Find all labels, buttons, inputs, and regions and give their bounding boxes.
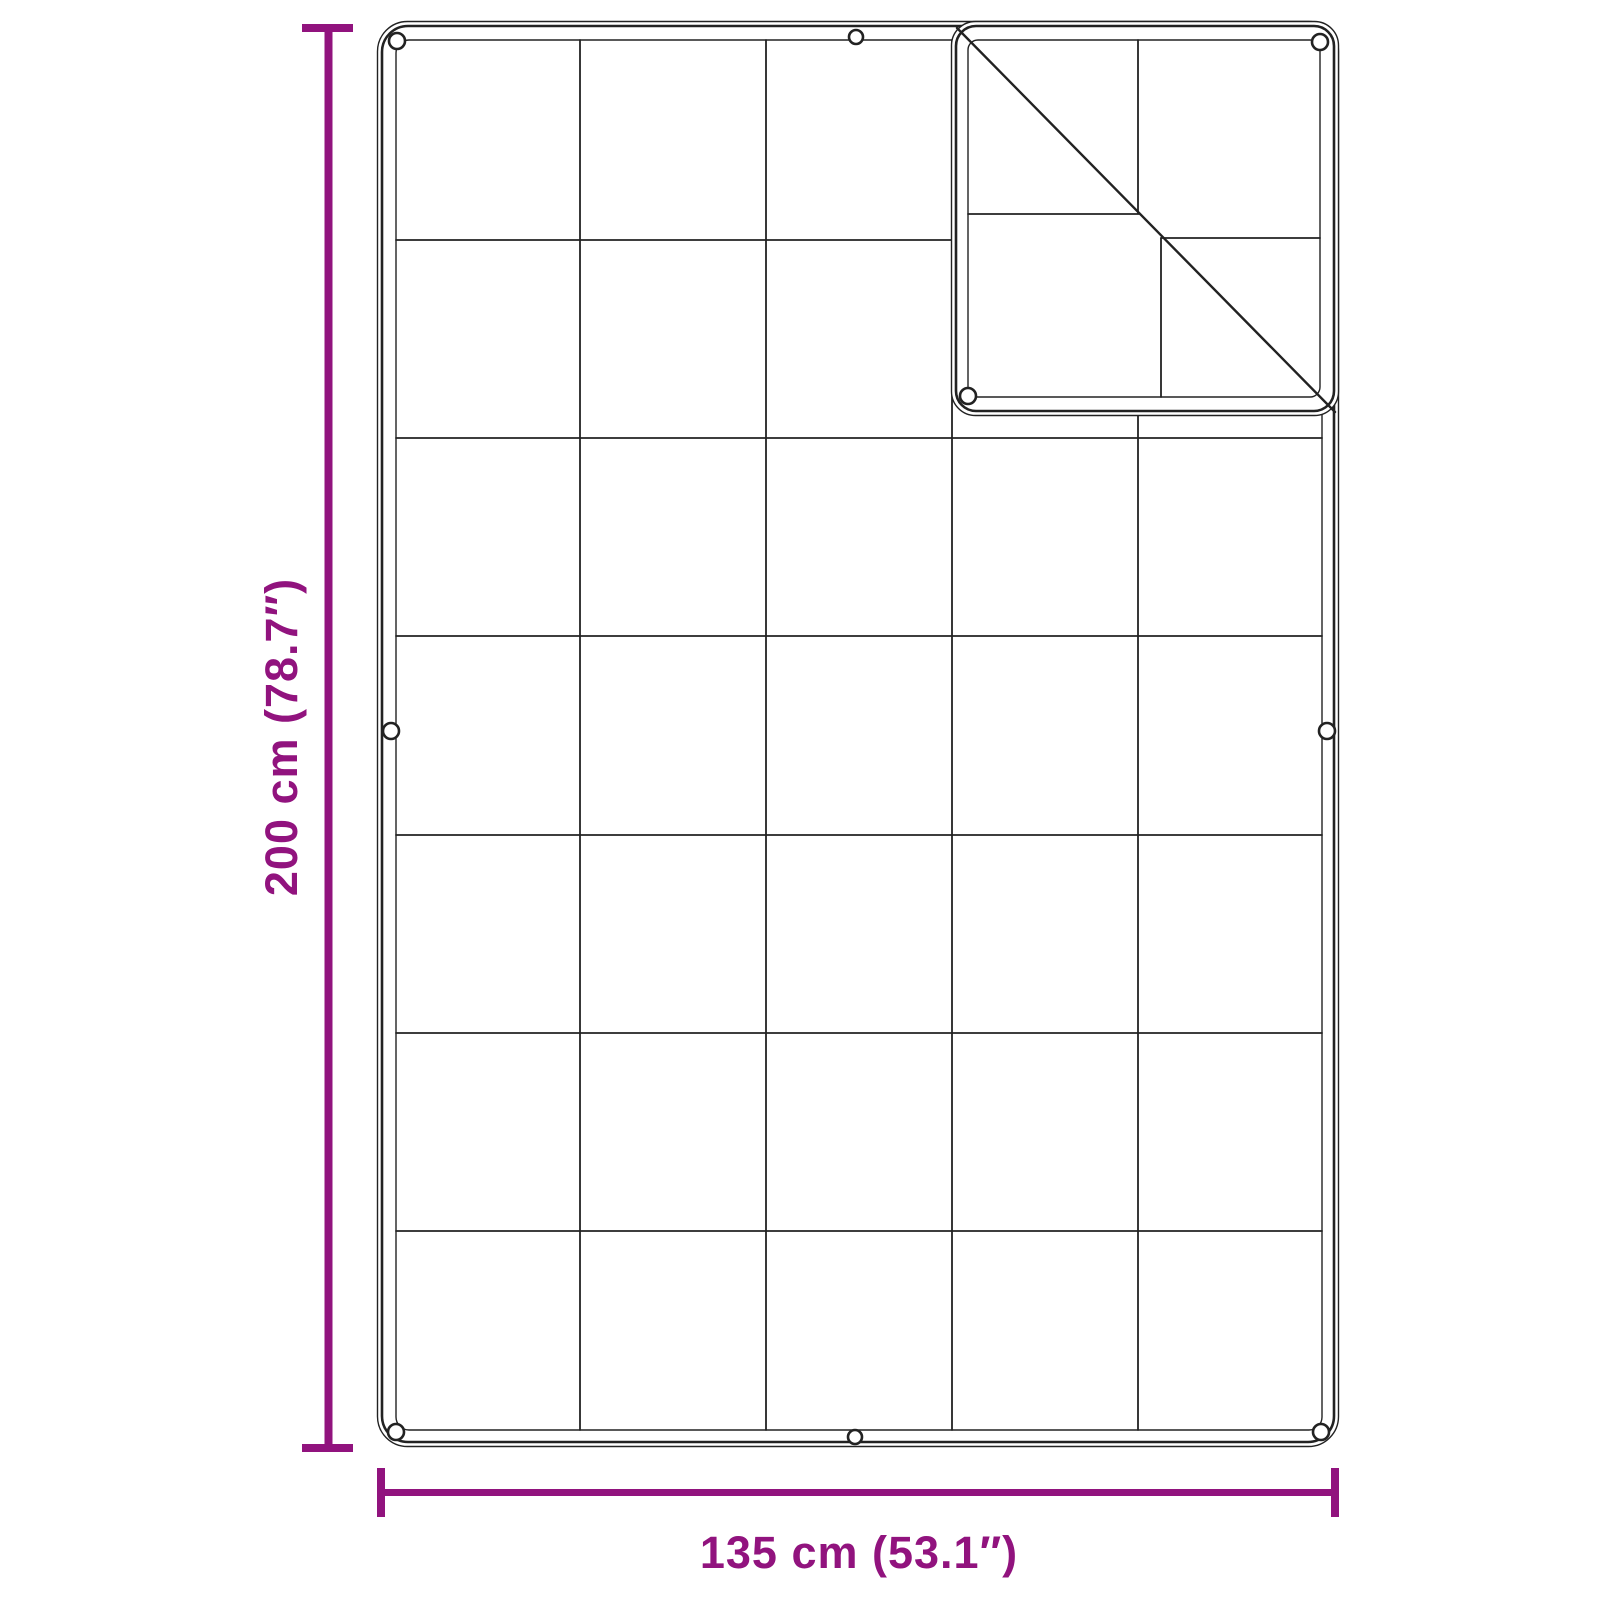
width-dimension-line [377, 1468, 1339, 1517]
height-dimension-label: 200 cm (78.7″) [256, 578, 307, 896]
eyelet-flap-bottom-left [960, 388, 976, 404]
eyelet-bottom-left-corner [388, 1424, 404, 1440]
height-dimension-cap-bottom [302, 1444, 353, 1452]
eyelet-top-middle [849, 30, 863, 44]
eyelet-left-middle [383, 723, 399, 739]
eyelet-flap-top-right [1312, 34, 1328, 50]
eyelet-bottom-middle [848, 1430, 862, 1444]
eyelet-right-middle [1319, 723, 1335, 739]
height-dimension-cap-top [302, 24, 353, 32]
tarp-drawing [378, 22, 1339, 1447]
width-dimension-cap-right [1331, 1468, 1339, 1517]
product-dimension-diagram: 200 cm (78.7″) 135 cm (53.1″) [0, 0, 1600, 1600]
diagram-svg: 200 cm (78.7″) 135 cm (53.1″) [0, 0, 1600, 1600]
folded-corner-flap [952, 22, 1339, 416]
width-dimension-shaft [381, 1489, 1335, 1496]
eyelet-top-left-corner [389, 33, 405, 49]
width-dimension-label: 135 cm (53.1″) [700, 1527, 1018, 1578]
width-dimension-cap-left [377, 1468, 385, 1517]
eyelet-bottom-right-corner [1313, 1424, 1329, 1440]
height-dimension-line [302, 24, 353, 1452]
height-dimension-shaft [325, 28, 333, 1446]
